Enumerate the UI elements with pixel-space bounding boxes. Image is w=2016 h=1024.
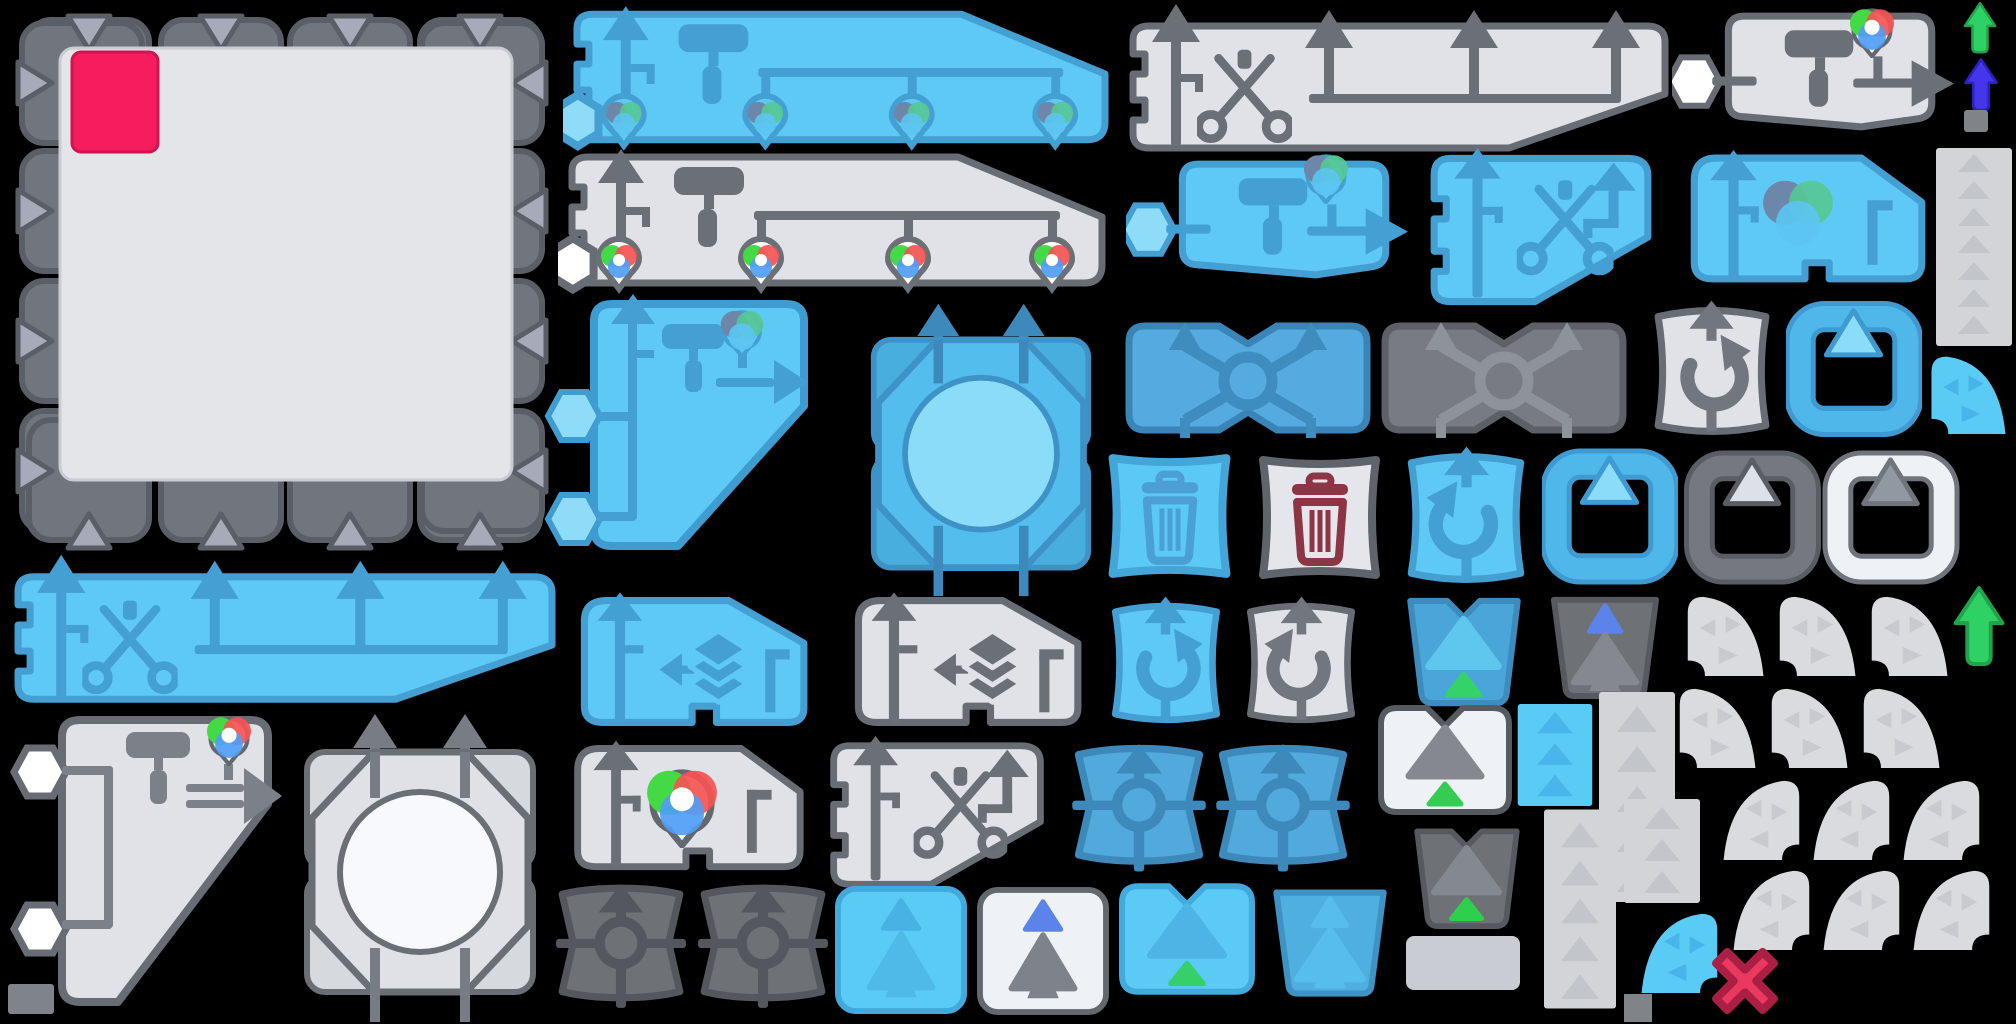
shape-layers-blue [558, 588, 812, 735]
rotate-cw-blue [1102, 588, 1230, 734]
fan-gray-mirrored [1896, 860, 1988, 954]
tiny-square-top-right [1964, 110, 1988, 132]
trash-white-red [1246, 446, 1393, 589]
rgb-wheel-icon [200, 708, 258, 766]
banner-paint-gray [558, 146, 1108, 298]
square-blue-green [1118, 882, 1256, 996]
octagon-turret-blue [842, 298, 1120, 598]
frame-blue-1 [1786, 298, 1922, 438]
banner-paint-blue [563, 4, 1111, 154]
fan-gray-mirrored [1716, 860, 1808, 954]
crimson-swatch [72, 52, 158, 152]
turret-blue-2 [1210, 744, 1356, 876]
fan-gray-mirrored [1886, 770, 1978, 864]
sprite-atlas [0, 0, 2016, 1024]
strip-plain-short [1406, 936, 1520, 990]
fan-gray-mirrored [1796, 770, 1888, 864]
hexagon-node-icon [548, 392, 600, 440]
fan-gray [1666, 678, 1758, 772]
square-white-tree [976, 886, 1110, 1016]
rgb-wheel-icon [714, 302, 770, 358]
rotate-cw-white [1644, 298, 1780, 440]
shape-cut-gray [812, 736, 1064, 894]
hexagon-node-icon [548, 495, 600, 543]
tiny-square-bottom-left [8, 984, 54, 1014]
rgb-wheel-icon [636, 756, 728, 848]
cross-swap-dark [1378, 318, 1630, 444]
turret-gray-2 [692, 884, 834, 1012]
square-white-green [1376, 704, 1514, 816]
rotate-ccw-blue [1400, 444, 1538, 588]
frame-blue-2 [1542, 446, 1678, 585]
hexagon-node-icon [14, 748, 66, 796]
canvas-panel [8, 6, 556, 558]
cross-swap-blue [1122, 318, 1374, 444]
rgb-wheel-icon [1297, 146, 1355, 204]
fan-gray [1766, 586, 1858, 680]
bucket-blue-tree [1262, 882, 1398, 998]
frame-dark [1684, 448, 1821, 585]
shape-roller-blue [1126, 150, 1418, 290]
red-x-marker [1710, 946, 1780, 1016]
strip-arrows-right [1936, 148, 2012, 346]
fan-gray [1858, 586, 1950, 680]
frame-white [1822, 448, 1960, 585]
rgb-wheel-icon [1752, 166, 1844, 258]
bucket-dark-tree [1538, 590, 1672, 700]
rotate-ccw-white [1230, 588, 1358, 734]
fan-gray [1674, 586, 1766, 680]
trash-blue [1096, 444, 1243, 588]
fan-gray-mirrored [1806, 860, 1898, 954]
shape-roller-gray [1672, 4, 1964, 140]
bucket-dark-green [1400, 820, 1534, 930]
banner-cut-blue [4, 552, 556, 706]
arrow-green-small [1962, 2, 1998, 56]
shape-layers-gray [832, 588, 1086, 735]
arrow-green-big [1952, 586, 2006, 670]
turret-blue-1 [1066, 744, 1212, 876]
fan-blue-1 [1918, 346, 2008, 438]
rgb-wheel-icon [1843, 0, 1901, 58]
shape-roller-arrow-blue [556, 294, 840, 556]
octagon-turret-gray [294, 708, 546, 1024]
tiny-square-fan [1624, 994, 1652, 1022]
strip-gray-c [1544, 802, 1616, 1016]
banner-cut-gray [1118, 2, 1670, 154]
fan-gray [1758, 678, 1850, 772]
strip-blue [1516, 704, 1594, 806]
arrow-indigo [1962, 58, 2000, 114]
hexagon-node-icon [14, 905, 66, 953]
shape-cut-blue [1416, 148, 1668, 312]
turret-gray-1 [550, 884, 692, 1012]
fan-blue-2 [1624, 902, 1716, 998]
bucket-blue-green [1394, 588, 1534, 708]
strip-gray-d [1624, 798, 1700, 904]
square-blue-tree [834, 884, 968, 1016]
fan-gray-mirrored [1706, 770, 1798, 864]
fan-gray [1850, 678, 1942, 772]
